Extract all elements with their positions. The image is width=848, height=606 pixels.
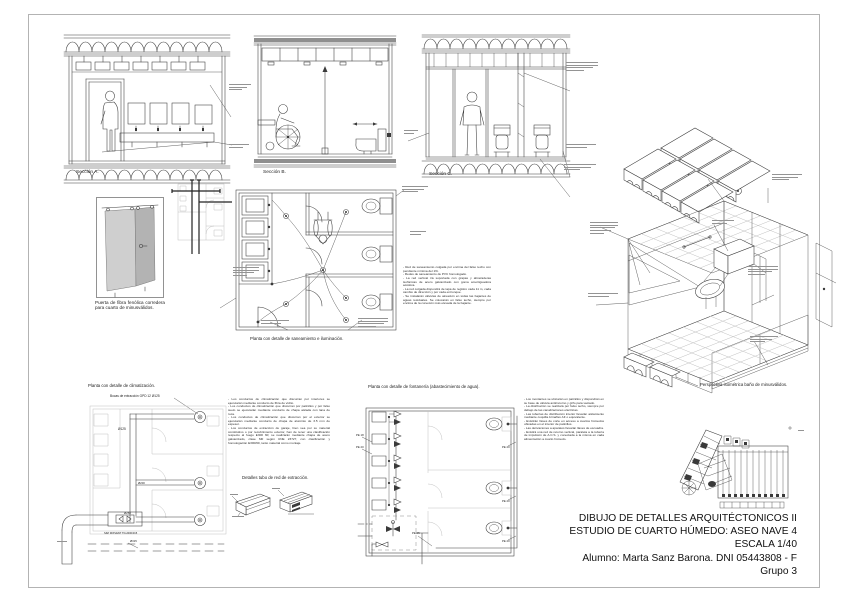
stall-partitions — [453, 53, 524, 157]
svg-text:Ø315: Ø315 — [130, 539, 137, 543]
drawing-sheet: Sección A. — [0, 0, 848, 606]
illegible-annotation — [750, 336, 778, 344]
sink-taps — [372, 411, 401, 513]
caption-isometric: Perspectiva isométrica baño de minusváli… — [700, 382, 787, 387]
svg-text:PE 20: PE 20 — [356, 445, 364, 449]
site-key-plan — [676, 424, 794, 516]
title-line-subject: ESTUDIO DE CUARTO HÚMEDO: ASEO NAVE 4 — [440, 525, 797, 538]
duct-detail-drawing — [230, 484, 314, 524]
svg-text:Ø125: Ø125 — [118, 427, 126, 431]
wheelchair-plan-symbol — [314, 212, 332, 244]
caption-section-b: Sección B. — [263, 170, 286, 175]
door-panel-2 — [135, 207, 155, 286]
ceiling-panels — [262, 48, 388, 65]
illegible-annotation — [57, 541, 67, 544]
toilet-plan — [362, 198, 392, 310]
illegible-annotation — [798, 430, 804, 433]
illegible-annotation — [564, 164, 596, 172]
toilet-side-view — [353, 122, 391, 154]
exterior-duct: Ø315 — [62, 515, 224, 564]
extraction-grille — [195, 515, 206, 526]
illegible-annotation — [590, 222, 618, 235]
support-pole — [322, 66, 328, 154]
caption-door-detail: Puerta de fibra fenólica corredera para … — [95, 300, 165, 310]
duct-sketch-2 — [272, 488, 314, 514]
illegible-annotation — [588, 293, 618, 298]
door-detail-drawing — [95, 196, 165, 300]
hollow-core-slab-top — [624, 128, 770, 223]
illegible-annotation — [402, 186, 428, 194]
illegible-annotation — [566, 62, 598, 73]
extraction-units-label: Bocas de extracción GPD 12 Ø125 — [110, 394, 160, 398]
title-line-course: DIBUJO DE DETALLES ARQUITÉCTONICOS II — [440, 512, 797, 525]
title-block: DIBUJO DE DETALLES ARQUITÉCTONICOS II ES… — [440, 512, 797, 578]
ceiling-hangers — [426, 53, 566, 69]
illegible-annotation — [404, 130, 418, 135]
illegible-annotation — [772, 174, 802, 182]
hvac-plan-drawing: Bocas de extracción GPD 12 Ø125 Ø125 Ø20… — [52, 388, 228, 568]
title-line-student: Alumno: Marta Sanz Barona. DNI 05443808 … — [440, 552, 797, 565]
door-frame — [86, 79, 124, 161]
caption-plan-sanitation: Planta con detalle de saneamiento e ilum… — [250, 336, 343, 341]
lighting-circuit — [257, 200, 349, 323]
section-a-drawing — [62, 33, 234, 175]
extraction-grille — [195, 478, 206, 489]
title-line-scale: ESCALA 1/40 — [440, 538, 797, 551]
toilet-front-view — [494, 125, 510, 157]
illegible-annotation — [358, 318, 388, 329]
notes-hvac: - Los conductos de climatización que dis… — [228, 398, 330, 445]
illegible-annotation — [261, 320, 289, 325]
mirrors — [128, 103, 212, 131]
duct-sketch-1 — [230, 494, 270, 517]
sanitation-plan-drawing — [228, 186, 403, 336]
walls — [628, 201, 832, 383]
illegible-annotation — [748, 266, 778, 277]
door-panel — [105, 209, 136, 291]
caption-plan-plumbing: Planta con detalle de fontanería (abaste… — [368, 384, 480, 389]
notes-sanitation: - Red de saneamiento colgada por encima … — [403, 266, 491, 306]
valve-manifold — [358, 516, 428, 564]
title-line-group: Grupo 3 — [440, 565, 797, 578]
illegible-annotation — [229, 84, 251, 92]
notes-plumbing: - Los montantes se ubicarán en patinillo… — [524, 398, 604, 442]
section-b-drawing — [252, 33, 398, 173]
extraction-ducts: Ø125 Ø200 Ø250 — [118, 412, 206, 526]
illegible-annotation — [229, 144, 249, 149]
wheelchair-person-figure — [258, 105, 300, 151]
room-outline — [90, 406, 226, 534]
caption-section-c: Sección C. — [429, 172, 452, 177]
svg-text:Ø200: Ø200 — [138, 481, 145, 485]
illegible-annotation — [566, 144, 596, 149]
section-c-drawing — [420, 33, 572, 181]
illegible-annotation — [233, 267, 259, 278]
nave-building — [718, 446, 788, 508]
person-figure — [101, 91, 118, 151]
illegible-annotation — [410, 231, 426, 236]
person-figure — [460, 92, 484, 155]
fan-unit: S&P MIXVENT TD-2000/315 — [104, 512, 142, 535]
caption-duct-detail: Detalles tubo de red de extracción. — [242, 475, 308, 480]
illegible-annotation — [712, 220, 734, 225]
suspended-lights-row — [72, 56, 222, 72]
extraction-grille — [195, 412, 206, 423]
key-plan-drawing — [168, 178, 236, 266]
caption-section-a: Sección A. — [76, 170, 99, 175]
svg-text:PE 18: PE 18 — [356, 433, 364, 437]
fan-model-label: S&P MIXVENT TD-2000/315 — [104, 531, 138, 535]
svg-text:Ø250: Ø250 — [124, 511, 131, 515]
toilet-front-view-2 — [534, 125, 550, 157]
